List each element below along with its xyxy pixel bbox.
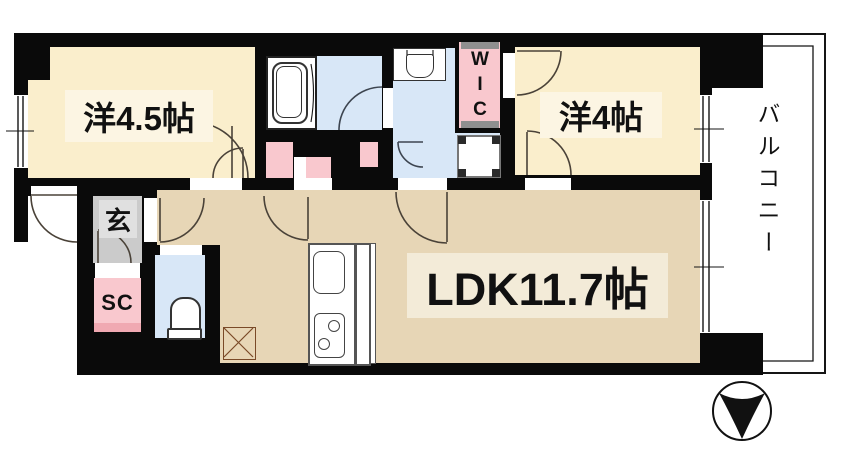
label-ldk: LDK11.7帖 <box>407 253 668 318</box>
niche-gap-opening <box>294 157 306 190</box>
shoe-closet-cap <box>94 323 141 332</box>
hallway <box>157 190 700 245</box>
storage-niche-3 <box>360 142 378 167</box>
window-ldk-opening <box>700 200 712 333</box>
storage-niche-1 <box>266 142 293 178</box>
genkan-sc-opening <box>95 263 140 278</box>
toilet-base <box>167 328 202 340</box>
bathtub-tub-inner <box>276 66 302 118</box>
genkan-hall-opening <box>144 198 157 242</box>
toilet-door-opening <box>160 245 202 255</box>
western45-door-opening <box>190 178 242 190</box>
refrigerator-space-icon <box>223 327 256 360</box>
label-balcony: バルコニー <box>748 82 786 282</box>
kitchen-counter-edge <box>370 243 376 364</box>
two-burner-stove-icon <box>314 313 345 358</box>
wall-notch-western45 <box>28 47 50 80</box>
wall-top-right-block <box>712 33 763 88</box>
washroom-door-opening <box>398 178 447 190</box>
window-left-opening <box>14 95 28 168</box>
washbasin-bowl <box>406 54 434 78</box>
entrance-porch <box>28 196 77 375</box>
washing-machine-pan-icon <box>457 135 501 178</box>
front-door-opening <box>31 186 77 196</box>
western4-door-opening <box>525 178 571 190</box>
label-entrance: 玄 <box>99 200 137 238</box>
label-wic: WIC <box>459 50 500 122</box>
window-western4-opening <box>700 95 712 163</box>
niche2-lower-opening <box>306 178 332 190</box>
exterior-left <box>14 242 28 375</box>
wic-door-opening <box>503 53 515 98</box>
kitchen-counter-side <box>355 243 371 366</box>
label-shoe-closet: SC <box>94 282 141 324</box>
label-western4: 洋4帖 <box>540 92 662 138</box>
kitchen-sink-icon <box>313 251 345 294</box>
label-western45: 洋4.5帖 <box>65 90 213 142</box>
compass-north-arrow-icon <box>710 379 774 443</box>
storage-niche-2 <box>306 157 331 178</box>
floor-plan: 洋4.5帖 洋4帖 LDK11.7帖 玄 SC WIC バルコニー <box>0 0 841 452</box>
